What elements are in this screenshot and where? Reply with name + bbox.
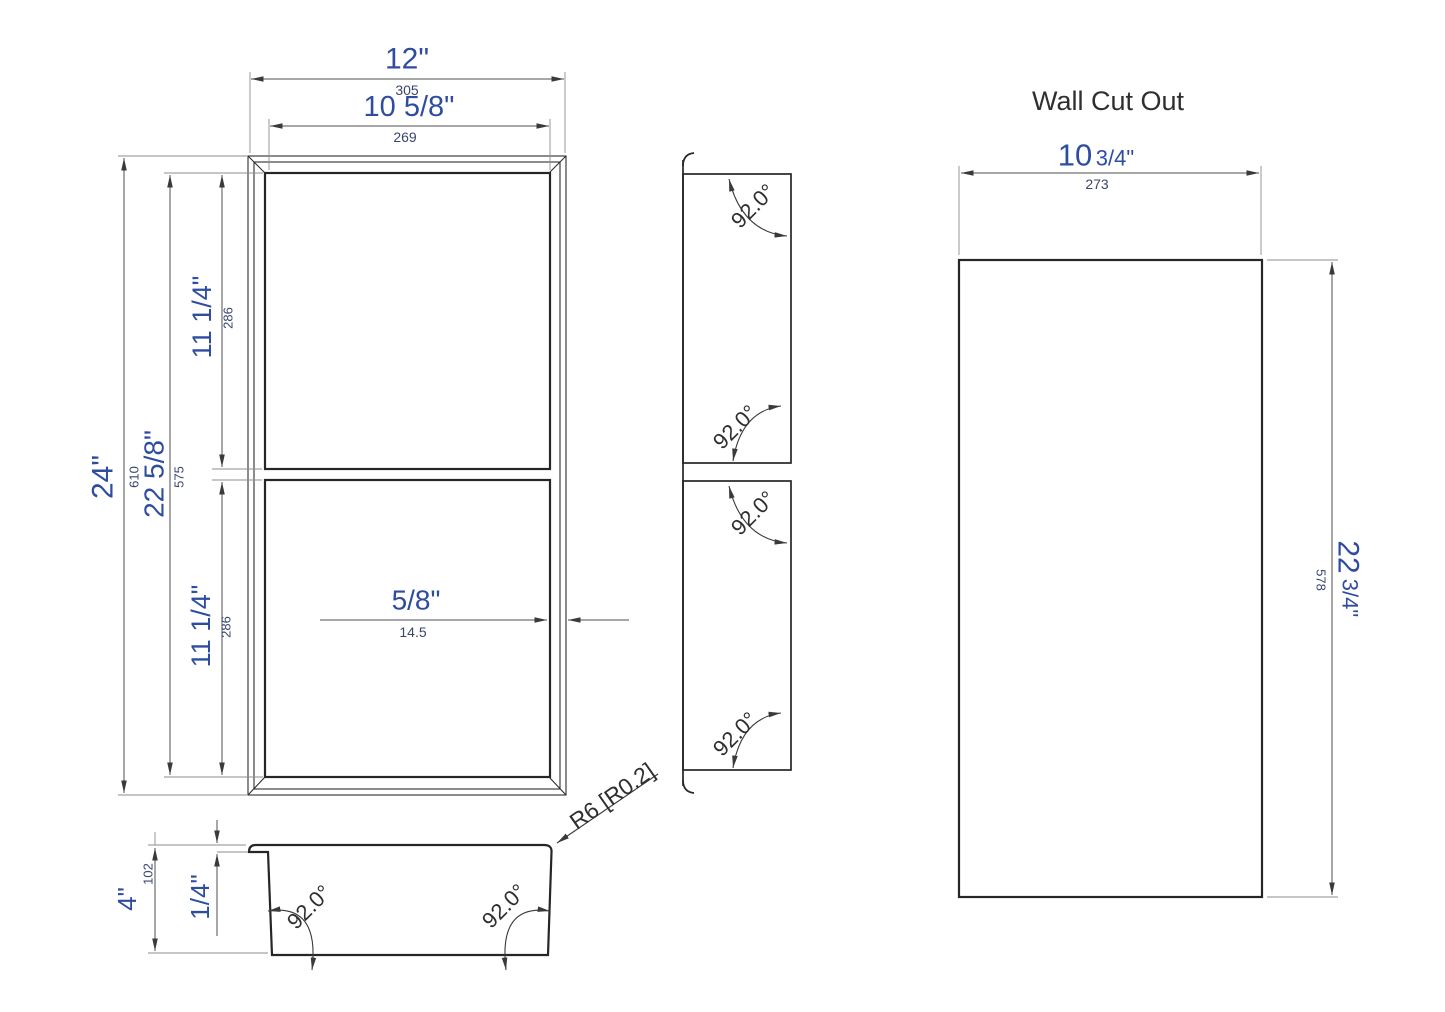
section-angle-right-label: 92.0° (477, 879, 531, 933)
dim-depth-mm: 102 (141, 863, 156, 885)
technical-drawing-page: 12" 305 10 5/8" 269 24" 610 22 5/8" 575 … (0, 0, 1445, 1012)
angle-arc (505, 910, 550, 970)
front-mid-frame (254, 162, 560, 789)
radius-callout-label: R6 [R0.2] (565, 757, 659, 834)
dim-width-in: 12" (385, 43, 429, 76)
side-view: 92.0° 92.0° 92.0° 92.0° (683, 153, 791, 793)
dim-upper-opening-mm: 286 (221, 307, 236, 329)
dim-lower-opening-in: 11 1/4" (186, 585, 216, 668)
wall-cutout-view: Wall Cut Out 10 3/4" 273 22 3/4" 578 (959, 86, 1365, 897)
dim-cutout-width-whole: 10 (1058, 138, 1092, 173)
dim-wall-thickness-in: 5/8" (392, 585, 441, 616)
dim-height-in: 24" (87, 455, 120, 499)
front-outer-frame (248, 156, 566, 795)
angle-upper-bottom-label: 92.0° (708, 400, 762, 454)
dim-lower-opening-mm: 286 (219, 616, 234, 638)
angle-lower-top-label: 92.0° (726, 486, 780, 540)
section-angle-left-label: 92.0° (282, 880, 336, 934)
mitre-bottom-left (248, 777, 265, 795)
side-bottom-curl (683, 780, 694, 793)
dim-cutout-width-mm: 273 (1085, 176, 1109, 192)
mitre-top-right (549, 156, 566, 173)
niche-dimension-drawing: 12" 305 10 5/8" 269 24" 610 22 5/8" 575 … (0, 0, 1445, 1012)
side-top-curl (683, 153, 694, 166)
dim-depth-in: 4" (112, 887, 142, 911)
dim-opening-height-in: 22 5/8" (139, 430, 170, 518)
dim-upper-opening-in: 11 1/4" (187, 276, 217, 359)
dim-opening-height-mm: 575 (172, 466, 187, 488)
front-view: 12" 305 10 5/8" 269 24" 610 22 5/8" 575 … (87, 43, 630, 796)
dim-cutout-height-whole: 22 (1332, 540, 1365, 573)
wall-cutout-title: Wall Cut Out (1032, 86, 1185, 116)
dim-wall-thickness-mm: 14.5 (399, 624, 426, 640)
dim-cutout-height-mm: 578 (1314, 569, 1329, 591)
mitre-bottom-right (549, 777, 566, 795)
wall-cutout-rect (959, 260, 1262, 897)
mitre-top-left (248, 156, 265, 173)
dim-opening-width-mm: 269 (393, 129, 417, 145)
angle-upper-top-label: 92.0° (726, 179, 780, 233)
dim-opening-width-in: 10 5/8" (364, 91, 455, 123)
dim-flange-in: 1/4" (185, 874, 215, 919)
dim-cutout-width-frac: 3/4" (1096, 146, 1134, 171)
front-upper-opening (265, 173, 550, 469)
angle-lower-bottom-label: 92.0° (708, 707, 762, 761)
dim-cutout-height-frac: 3/4" (1338, 579, 1363, 617)
